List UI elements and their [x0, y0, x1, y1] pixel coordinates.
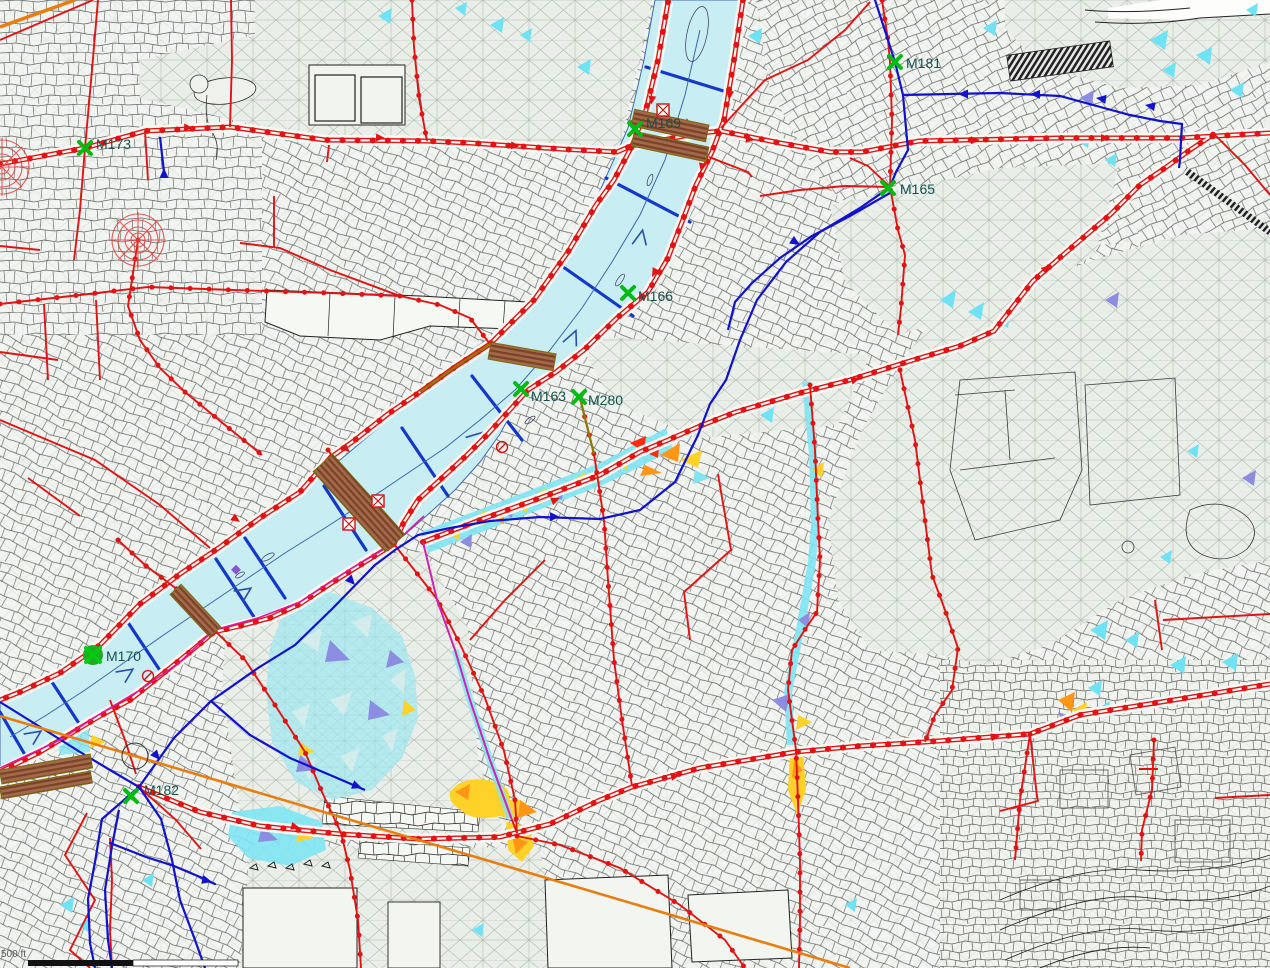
svg-text:M166: M166 — [638, 288, 673, 304]
svg-text:M163: M163 — [531, 388, 566, 404]
svg-text:M173: M173 — [96, 136, 131, 152]
svg-text:M170: M170 — [106, 648, 141, 664]
svg-text:M182: M182 — [144, 782, 179, 798]
svg-text:M165: M165 — [900, 181, 935, 197]
svg-text:M280: M280 — [588, 392, 623, 408]
svg-text:M181: M181 — [906, 55, 941, 71]
svg-text:500 ft: 500 ft — [1, 949, 26, 960]
svg-text:M169: M169 — [646, 115, 681, 131]
